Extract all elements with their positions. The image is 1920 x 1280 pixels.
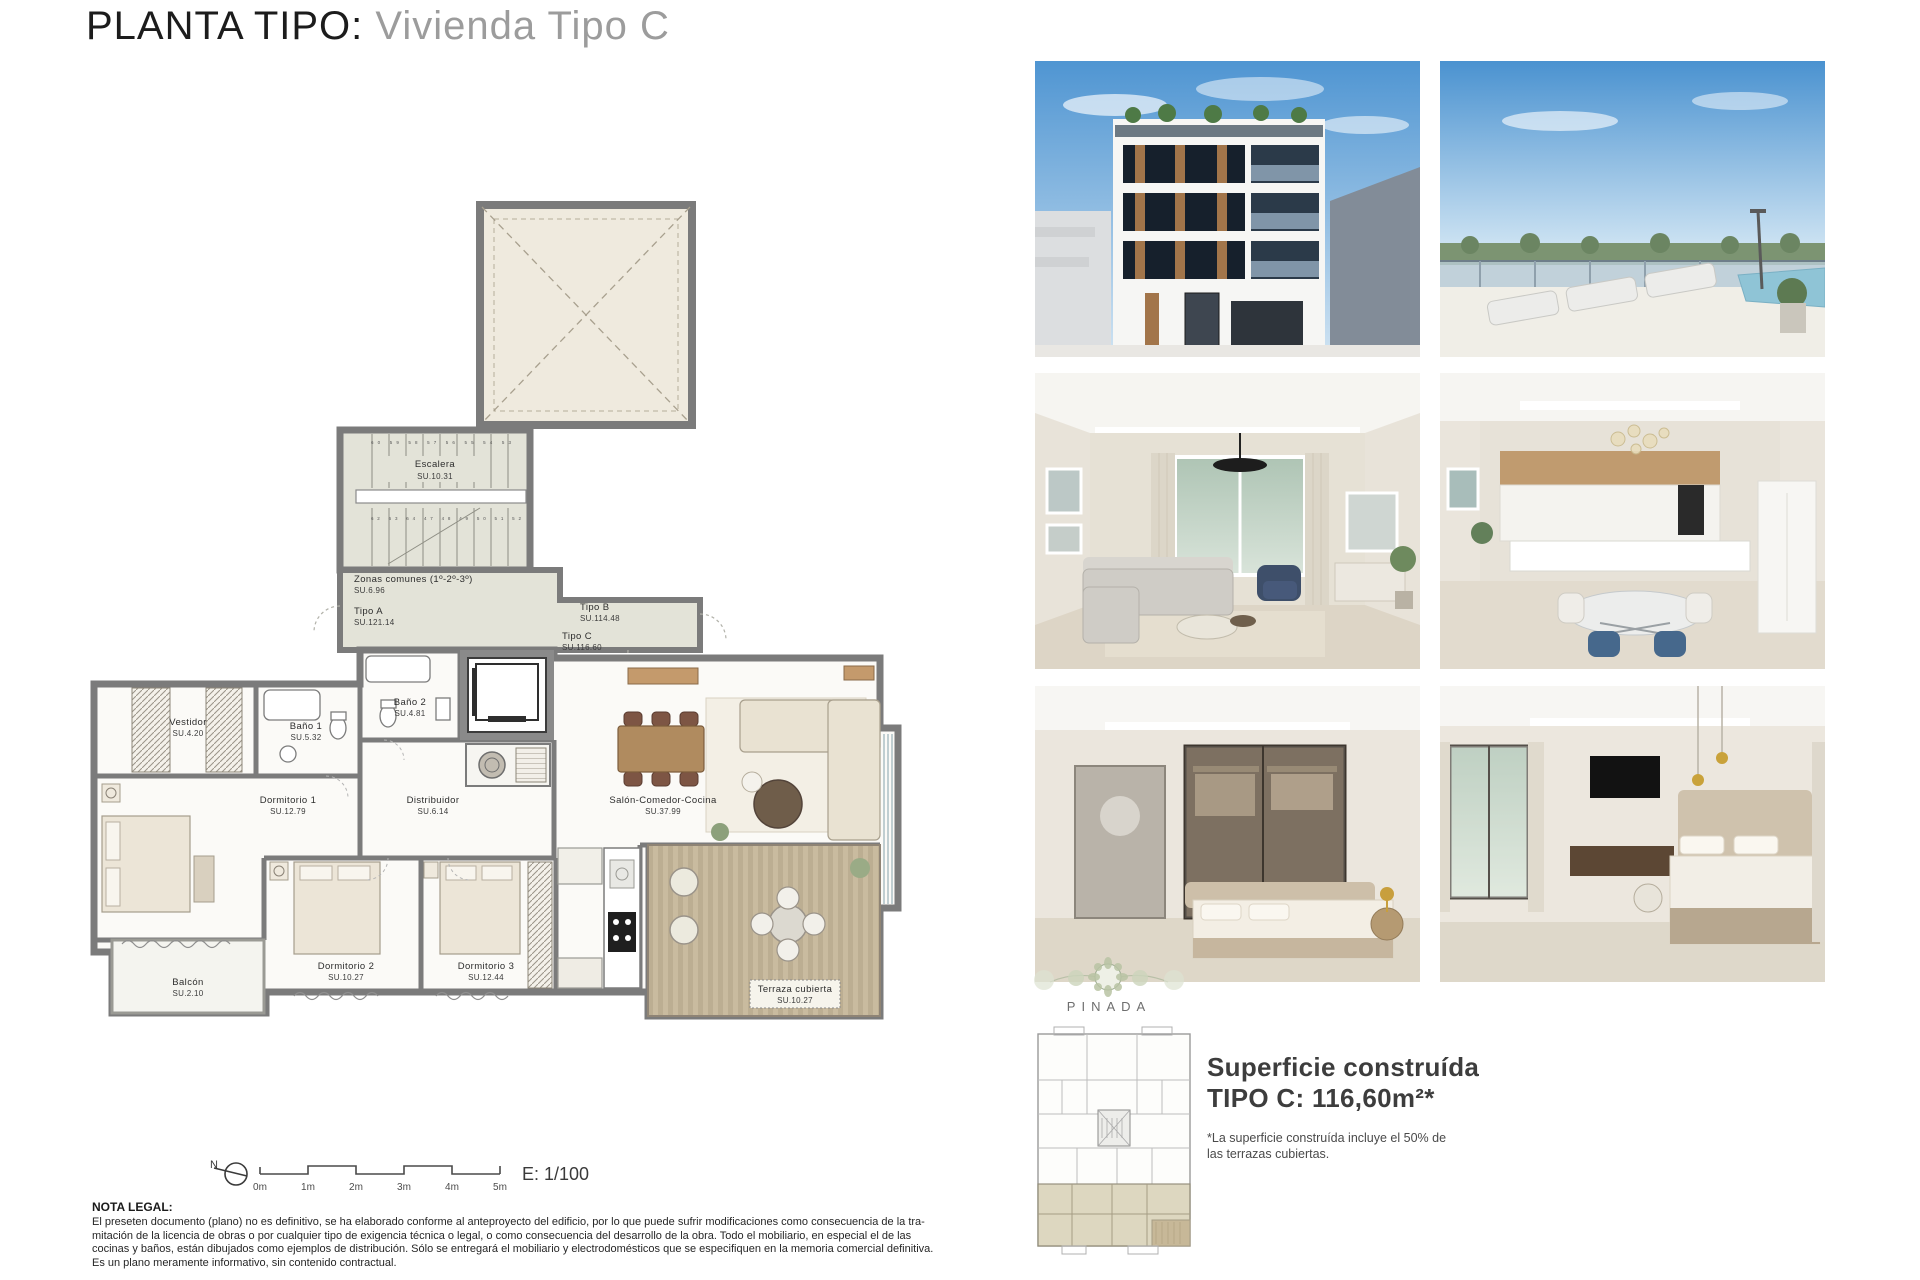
bano2-label: Baño 2 [394,697,427,708]
patio-terrace-roof [476,201,696,425]
scale-bar-line [260,1166,500,1174]
scale-tick-2: 2m [349,1182,363,1193]
brand-name: PINADA [1028,999,1190,1014]
facade-render-art [1035,61,1420,357]
balcon-area: SU.2.10 [172,989,203,998]
scale-ratio: E: 1/100 [522,1164,589,1184]
living-room-render-art [1035,373,1420,669]
floor-plan: 60 59 58 57 56 55 54 53 Escalera SU.10.3… [88,168,908,1040]
dorm3-label: Dormitorio 3 [458,961,515,972]
dorm2-label: Dormitorio 2 [318,961,375,972]
dorm1-label: Dormitorio 1 [260,795,317,806]
tipo-b-area: SU.114.48 [580,614,620,623]
tipo-c-label: Tipo C [562,631,592,642]
distribuidor-area: SU.6.14 [417,807,448,816]
distribuidor-label: Distribuidor [407,795,460,806]
tipo-a-label: Tipo A [354,606,383,617]
salon-area: SU.37.99 [645,807,681,816]
scale-bar: N 0m 1m 2m 3m 4m 5m E: 1/100 [200,1150,620,1200]
bedroom-window-render-art [1440,686,1825,982]
summary-line1: Superficie construída [1207,1052,1537,1083]
bano1-label: Baño 1 [290,721,323,732]
tipo-a-area: SU.121.14 [354,618,395,627]
key-plan-thumbnail [1032,1024,1196,1270]
scale-tick-0: 0m [253,1182,267,1193]
photo-bedroom-closet-render [1035,686,1420,982]
bano2-area: SU.4.81 [394,709,425,718]
legal-note: NOTA LEGAL: El preseten documento (plano… [92,1200,962,1270]
page-title: PLANTA TIPO: Vivienda Tipo C [86,4,670,49]
apartment-tipo-c: Vestidor SU.4.20 Baño 1 SU.5.32 Baño 2 S… [94,650,898,1016]
terraza-label: Terraza cubierta [758,984,833,995]
dorm2-area: SU.10.27 [328,973,364,982]
salon-label: Salón-Comedor-Cocina [609,795,717,806]
legal-line: El preseten documento (plano) no es defi… [92,1216,962,1230]
north-arrow-icon: N [210,1159,247,1185]
zonas-label: Zonas comunes (1º-2º-3º) [354,574,473,585]
summary-note-line1: *La superficie construída incluye el 50%… [1207,1130,1537,1146]
summary-note-line2: las terrazas cubiertas. [1207,1146,1537,1162]
key-plan-highlighted-unit [1038,1184,1190,1246]
legal-line: Es un plano meramente informativo, sin c… [92,1257,962,1271]
tipo-c-area: SU.116.60 [562,643,602,652]
page-title-sub: Vivienda Tipo C [363,4,670,48]
photo-facade-render [1035,61,1420,357]
legal-line: mitación de la licencia de obras o por c… [92,1230,962,1244]
scale-tick-1: 1m [301,1182,315,1193]
escalera-label: Escalera [415,459,455,470]
elevator [460,650,554,740]
photo-living-room-render [1035,373,1420,669]
legal-heading: NOTA LEGAL: [92,1200,962,1214]
vestidor-label: Vestidor [169,717,207,728]
photo-bedroom-window-render [1440,686,1825,982]
scale-tick-5: 5m [493,1182,507,1193]
summary-note: *La superficie construída incluye el 50%… [1207,1130,1537,1162]
escalera-area: SU.10.31 [417,472,453,481]
zonas-area: SU.6.96 [354,586,385,595]
plan-sheet: PLANTA TIPO: Vivienda Tipo C [0,0,1920,1280]
tipo-b-label: Tipo B [580,602,610,613]
dorm3-area: SU.12.44 [468,973,504,982]
page-title-main: PLANTA TIPO: [86,4,363,48]
stair-numbers-top: 60 59 58 57 56 55 54 53 [371,440,511,445]
rooftop-render-art [1440,61,1825,357]
area-summary: Superficie construída TIPO C: 116,60m²* … [1207,1052,1537,1162]
dorm1-area: SU.12.79 [270,807,306,816]
stair-core: 60 59 58 57 56 55 54 53 Escalera SU.10.3… [340,430,530,570]
summary-line2: TIPO C: 116,60m²* [1207,1083,1537,1114]
brand-logo-icon [1028,956,1190,1000]
scale-tick-4: 4m [445,1182,459,1193]
photo-dining-kitchen-render [1440,373,1825,669]
dining-kitchen-render-art [1440,373,1825,669]
balcon-label: Balcón [172,977,203,988]
vestidor-area: SU.4.20 [172,729,203,738]
bedroom-closet-render-art [1035,686,1420,982]
terraza-area: SU.10.27 [777,996,813,1005]
scale-tick-3: 3m [397,1182,411,1193]
laundry-area [466,744,550,786]
photo-rooftop-render [1440,61,1825,357]
bano1-area: SU.5.32 [290,733,321,742]
legal-line: cocinas y baños, están dibujados como ej… [92,1243,962,1257]
